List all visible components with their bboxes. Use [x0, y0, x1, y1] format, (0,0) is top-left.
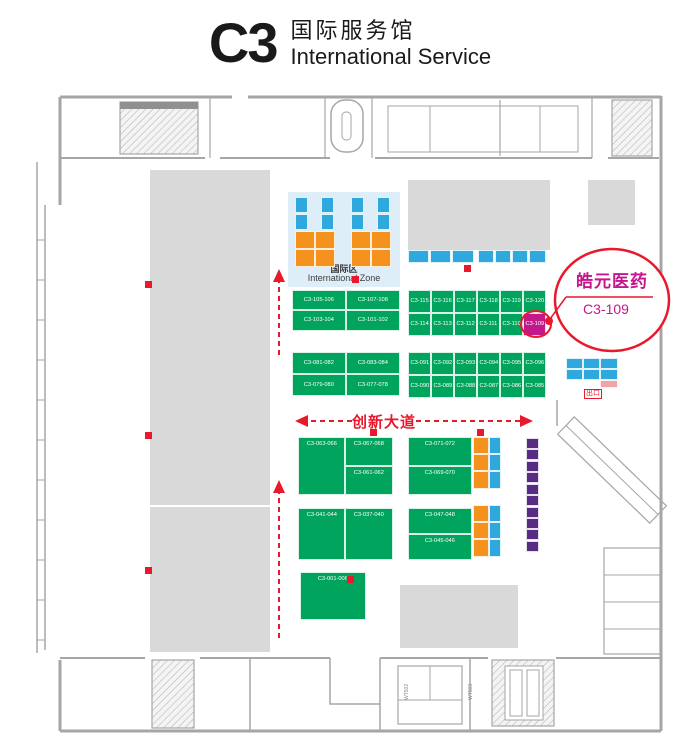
callout-company: 皓元医药 [556, 267, 668, 292]
wall-label: WT502 [404, 684, 410, 700]
annotations [0, 0, 700, 749]
floorplan-page: C3 国际服务馆 International Service [0, 0, 700, 749]
exit-label: 出口 [584, 389, 602, 399]
highlight-callout [521, 249, 669, 351]
wall-label: WT503 [468, 684, 474, 700]
callout-booth-number: C3-109 [556, 301, 656, 317]
road-label: 创新大道 [352, 411, 416, 432]
